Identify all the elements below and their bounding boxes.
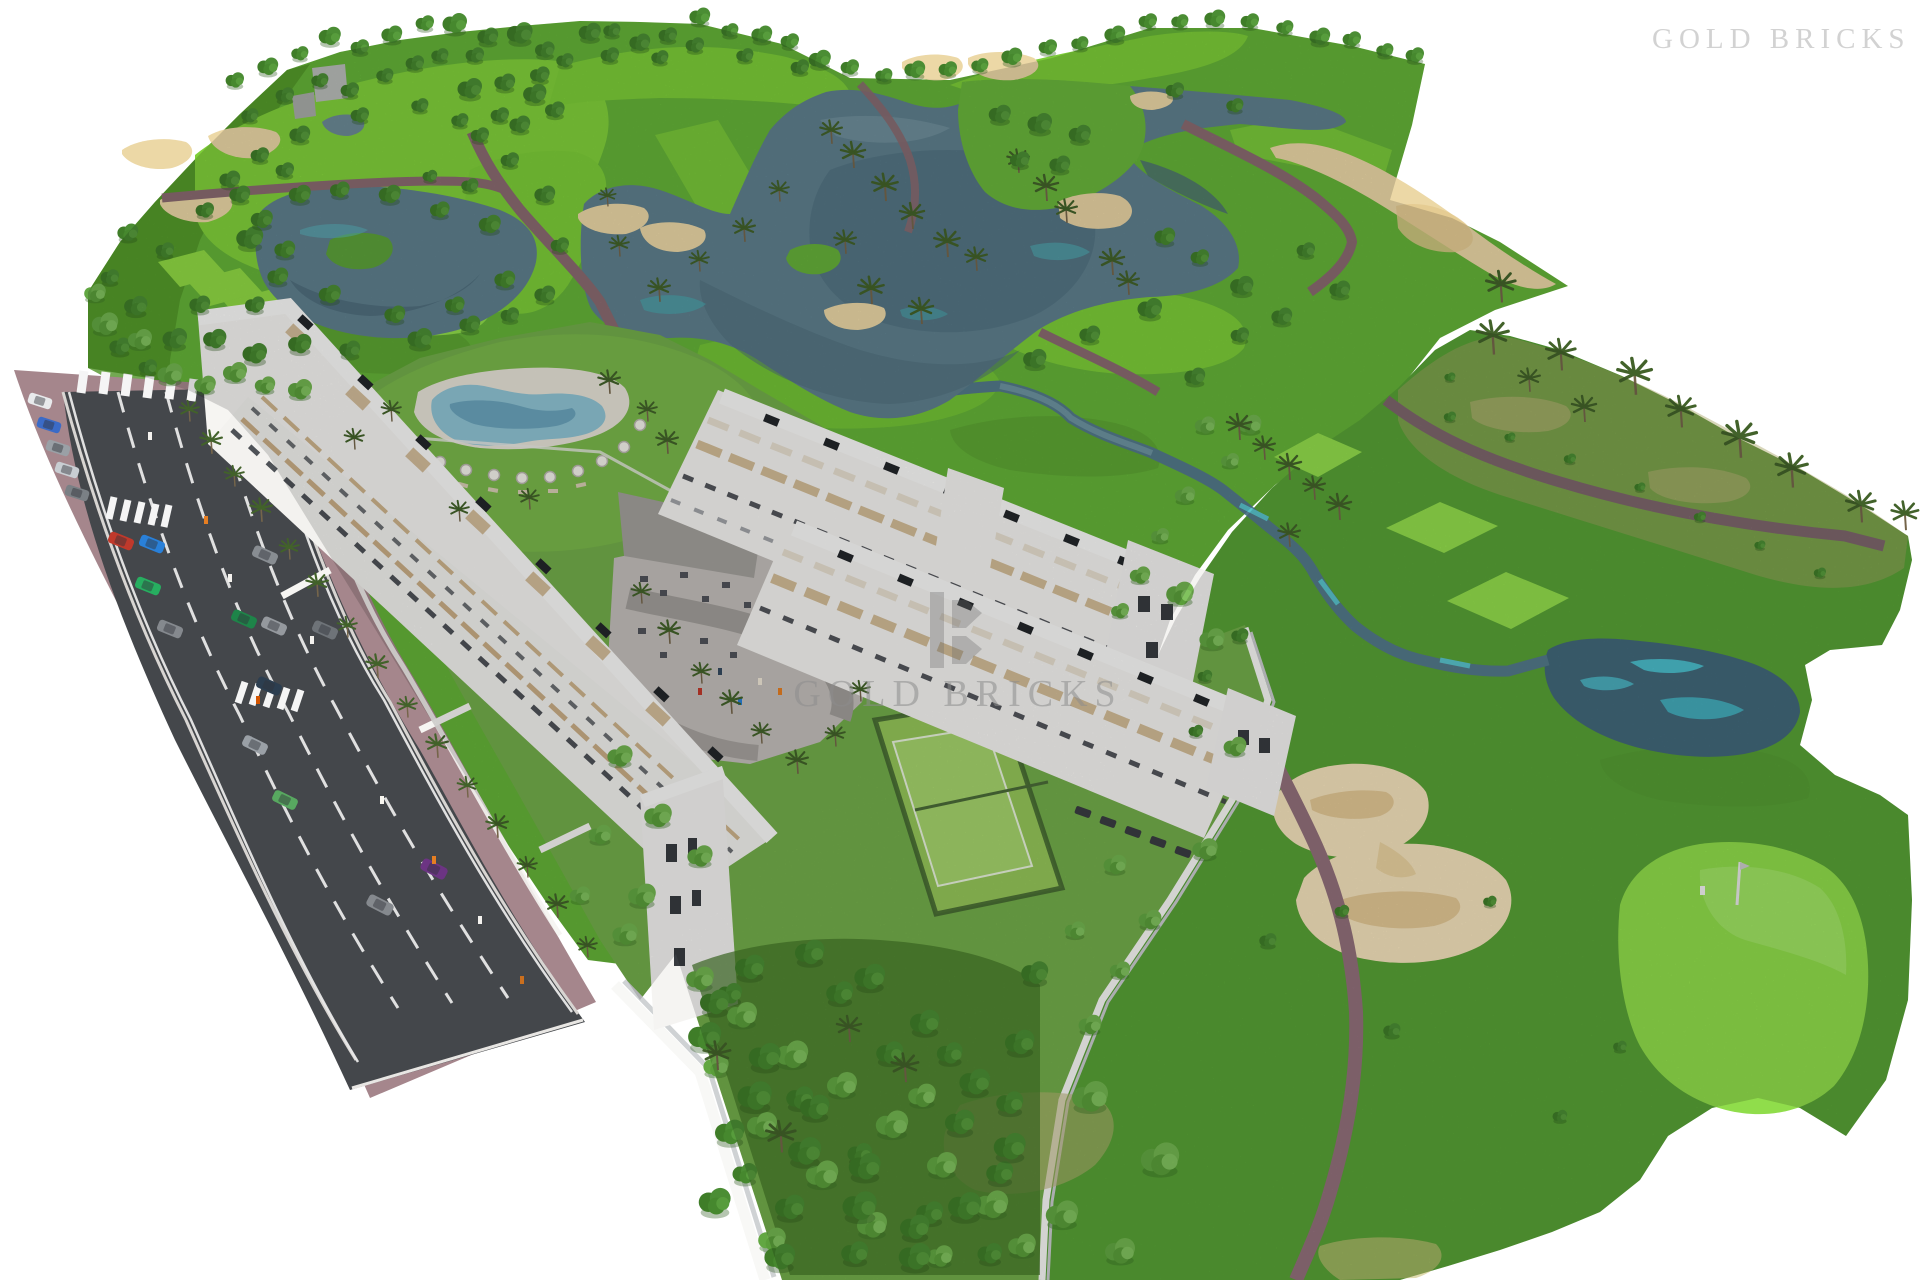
svg-text:GOLD BRICKS: GOLD BRICKS [793,673,1122,715]
svg-text:GOLD BRICKS: GOLD BRICKS [1652,23,1911,55]
